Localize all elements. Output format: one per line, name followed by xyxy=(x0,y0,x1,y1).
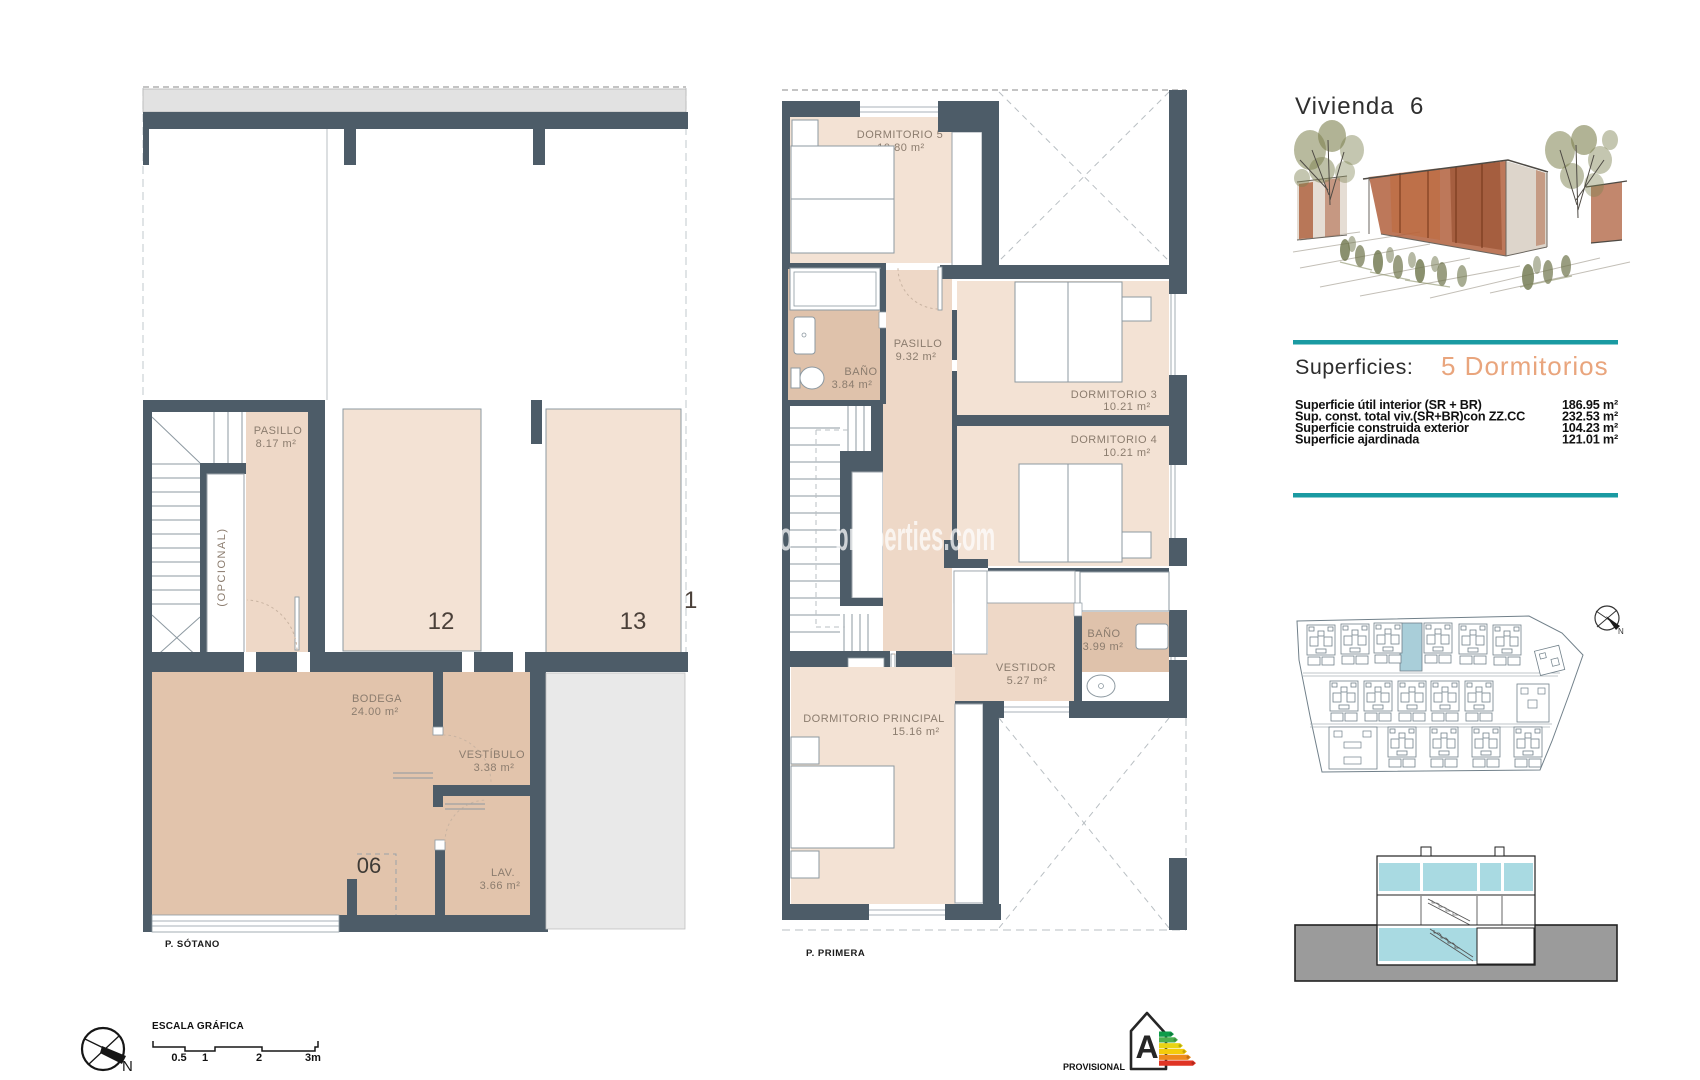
svg-text:BAÑO: BAÑO xyxy=(844,365,877,378)
svg-text:BAÑO: BAÑO xyxy=(1087,627,1120,640)
svg-text:VESTIDOR: VESTIDOR xyxy=(996,662,1056,674)
svg-text:DORMITORIO 4: DORMITORIO 4 xyxy=(1071,434,1157,446)
svg-text:12: 12 xyxy=(428,608,455,635)
svg-text:A: A xyxy=(1135,1029,1158,1065)
svg-text:3m: 3m xyxy=(305,1052,321,1064)
svg-text:Superficies:: Superficies: xyxy=(1295,355,1413,379)
svg-text:BODEGA: BODEGA xyxy=(352,693,402,705)
svg-text:0.5: 0.5 xyxy=(171,1052,186,1064)
svg-text:N: N xyxy=(1618,627,1624,636)
svg-text:15.16 m²: 15.16 m² xyxy=(892,726,939,738)
svg-text:VESTÍBULO: VESTÍBULO xyxy=(459,748,525,761)
svg-text:DORMITORIO 3: DORMITORIO 3 xyxy=(1071,389,1157,401)
svg-text:P. PRIMERA: P. PRIMERA xyxy=(806,948,865,959)
svg-text:121.01 m²: 121.01 m² xyxy=(1562,433,1618,447)
svg-text:1: 1 xyxy=(202,1052,208,1064)
svg-text:5.27 m²: 5.27 m² xyxy=(1007,675,1048,687)
svg-text:3.38 m²: 3.38 m² xyxy=(474,762,515,774)
svg-text:10.21 m²: 10.21 m² xyxy=(1103,401,1150,413)
svg-text:P. SÓTANO: P. SÓTANO xyxy=(165,938,220,950)
svg-text:10.21 m²: 10.21 m² xyxy=(1103,447,1150,459)
svg-text:5 Dormitorios: 5 Dormitorios xyxy=(1441,351,1609,381)
svg-text:ESCALA GRÁFICA: ESCALA GRÁFICA xyxy=(152,1019,244,1032)
svg-text:DORMITORIO 5: DORMITORIO 5 xyxy=(857,129,943,141)
svg-text:3.99 m²: 3.99 m² xyxy=(1083,641,1124,653)
svg-text:13: 13 xyxy=(620,608,647,635)
svg-text:3.84 m²: 3.84 m² xyxy=(832,379,873,391)
svg-text:2: 2 xyxy=(256,1052,262,1064)
svg-text:LAV.: LAV. xyxy=(491,867,515,879)
svg-text:properties.com: properties.com xyxy=(835,514,995,559)
svg-text:Superficie ajardinada: Superficie ajardinada xyxy=(1295,433,1420,447)
svg-text:8.17 m²: 8.17 m² xyxy=(256,438,297,450)
svg-text:DORMITORIO PRINCIPAL: DORMITORIO PRINCIPAL xyxy=(803,713,945,725)
svg-text:PASILLO: PASILLO xyxy=(894,338,943,350)
svg-text:N: N xyxy=(122,1058,133,1075)
svg-text:06: 06 xyxy=(357,853,381,878)
svg-text:(OPCIONAL): (OPCIONAL) xyxy=(216,527,228,606)
svg-text:24.00 m²: 24.00 m² xyxy=(351,706,398,718)
svg-text:o: o xyxy=(779,514,793,558)
svg-text:PROVISIONAL: PROVISIONAL xyxy=(1063,1062,1126,1072)
svg-text:1: 1 xyxy=(684,587,697,614)
svg-text:PASILLO: PASILLO xyxy=(254,425,303,437)
svg-text:3.66 m²: 3.66 m² xyxy=(480,880,521,892)
svg-text:9.32 m²: 9.32 m² xyxy=(896,351,937,363)
svg-text:Vivienda 6: Vivienda 6 xyxy=(1295,93,1424,120)
